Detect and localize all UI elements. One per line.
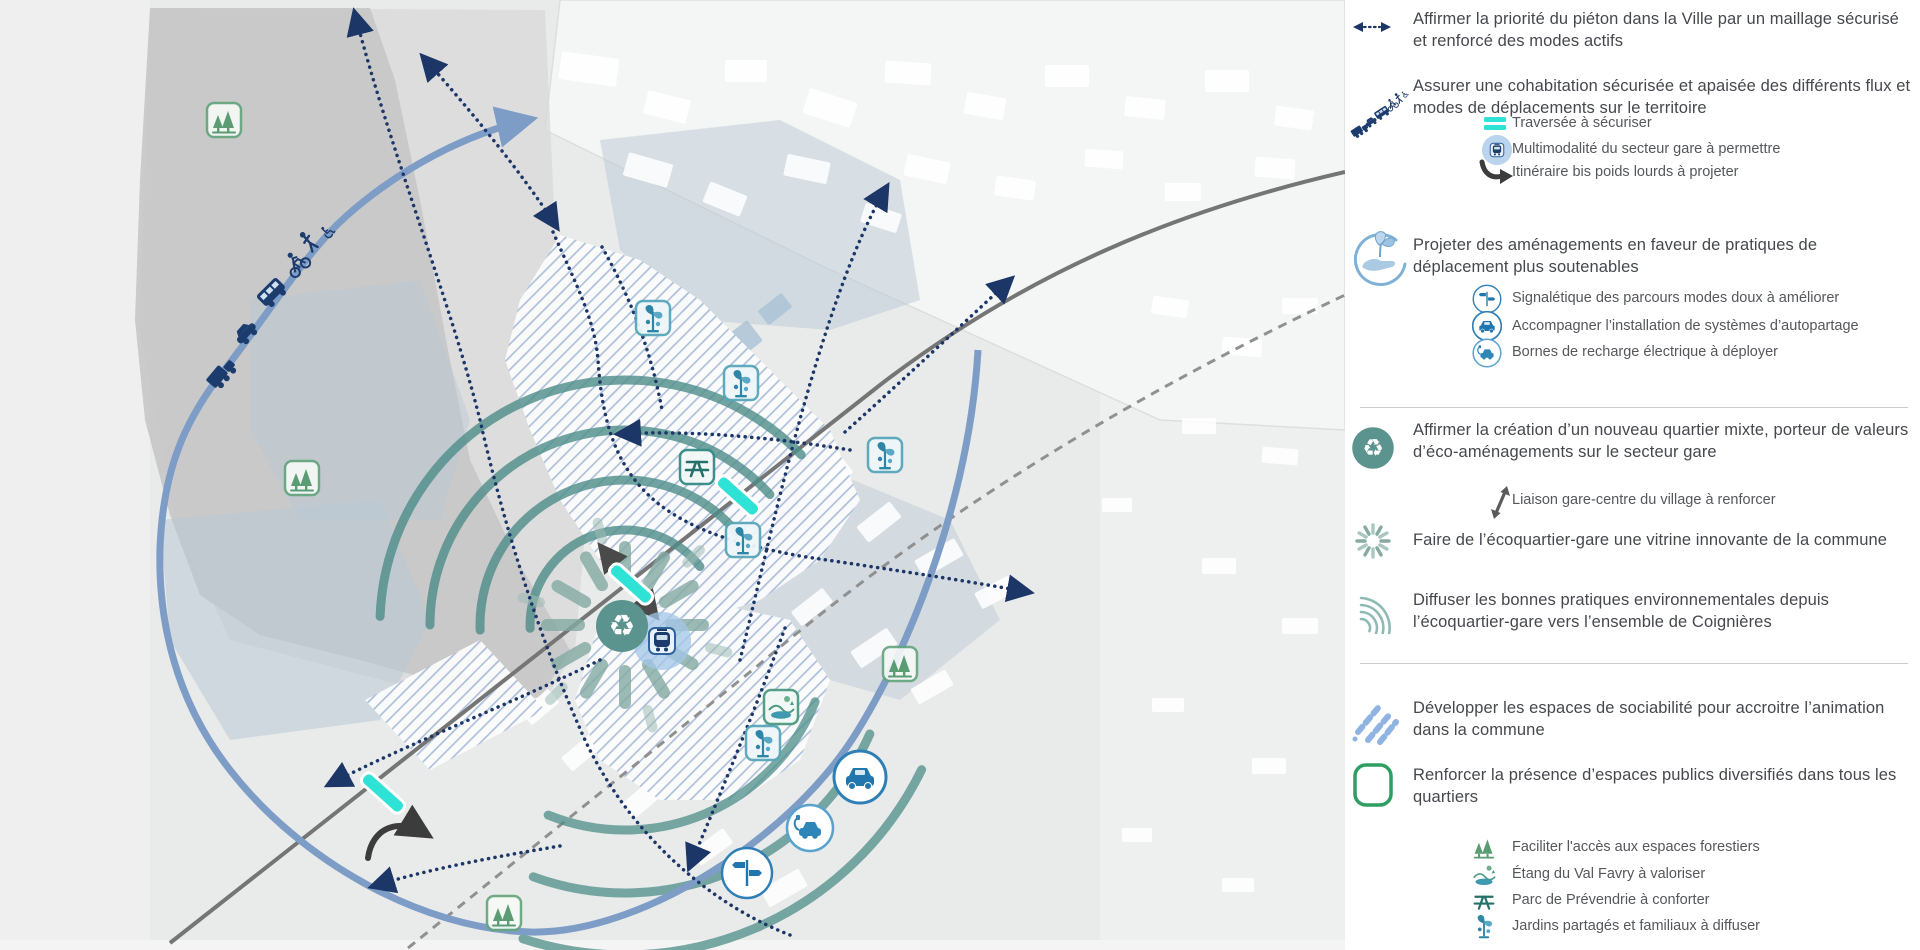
legend-label: Affirmer la priorité du piéton dans la V… [1413, 8, 1913, 52]
blue-hatch-icon [1350, 694, 1400, 746]
jardin-icon [868, 438, 902, 472]
forest-icon [487, 896, 521, 930]
map-west-fields [0, 0, 150, 950]
picnic-icon [680, 450, 714, 484]
hand-leaves-icon [1352, 228, 1410, 290]
forest-icon [207, 103, 241, 137]
legend-divider [1360, 663, 1908, 664]
jardin-icon [724, 366, 758, 400]
ev-charging-icon [1472, 338, 1502, 368]
carshare-icon [834, 751, 886, 803]
evcharge-icon [787, 805, 833, 851]
carshare-icon [1472, 311, 1502, 341]
legend-label: Multimodalité du secteur gare à permettr… [1512, 140, 1914, 158]
legend-label: Développer les espaces de sociabilité po… [1413, 697, 1913, 741]
public-space-square-icon [1352, 762, 1394, 808]
double-dotted-arrow-icon [1352, 20, 1392, 34]
pond-icon [1470, 862, 1498, 889]
legend-label: Parc de Prévendrie à conforter [1512, 891, 1914, 909]
jardin-icon [746, 726, 780, 760]
legend-divider [1360, 407, 1908, 408]
legend-label: Itinéraire bis poids lourds à projeter [1512, 163, 1914, 181]
forest-icon [883, 647, 917, 681]
scheme-map: ♿ [0, 0, 1345, 950]
legend-label: Signalétique des parcours modes doux à a… [1512, 289, 1914, 307]
forest-icon [285, 461, 319, 495]
legend-label: Traversée à sécuriser [1512, 114, 1914, 132]
forest-icon [1470, 834, 1498, 861]
legend-label: Faciliter l'accès aux espaces forestiers [1512, 838, 1914, 856]
legend-label: Étang du Val Favry à valoriser [1512, 865, 1914, 883]
legend-label: Renforcer la présence d’espaces publics … [1413, 764, 1913, 808]
liaison-arrow-icon [1488, 484, 1514, 520]
etang-icon [764, 690, 798, 724]
traffic-flux-icon [1350, 86, 1410, 140]
sunburst-icon [1350, 518, 1396, 564]
picnic-table-icon [1470, 888, 1498, 915]
legend-label: Projeter des aménagements en faveur de p… [1413, 234, 1913, 278]
shared-garden-icon [1470, 913, 1498, 941]
legend-label: Accompagner l’installation de systèmes d… [1512, 317, 1914, 335]
legend-label: Liaison gare-centre du village à renforc… [1512, 491, 1914, 509]
legend-label: Affirmer la création d’un nouveau quarti… [1413, 419, 1913, 463]
signpost-icon [1472, 284, 1502, 314]
legend-label: Bornes de recharge électrique à déployer [1512, 343, 1914, 361]
jardin-icon [636, 301, 670, 335]
hgv-bypass-arrow-icon [1478, 158, 1516, 186]
secured-crossing-icon [1484, 116, 1508, 131]
legend-label: Diffuser les bonnes pratiques environnem… [1413, 589, 1913, 633]
signpost-icon [722, 848, 772, 898]
eco-icon [596, 600, 648, 652]
legend-label: Faire de l’écoquartier-gare une vitrine … [1413, 529, 1913, 551]
legend-label: Jardins partagés et familiaux à diffuser [1512, 917, 1914, 935]
legend-label: Assurer une cohabitation sécurisée et ap… [1413, 75, 1913, 119]
train-station-icon [1481, 134, 1513, 166]
jardin-icon [726, 523, 760, 557]
urban-scheme-page: ♿ [0, 0, 1920, 950]
eco-district-icon [1351, 426, 1395, 470]
diffusion-waves-icon [1352, 578, 1398, 634]
